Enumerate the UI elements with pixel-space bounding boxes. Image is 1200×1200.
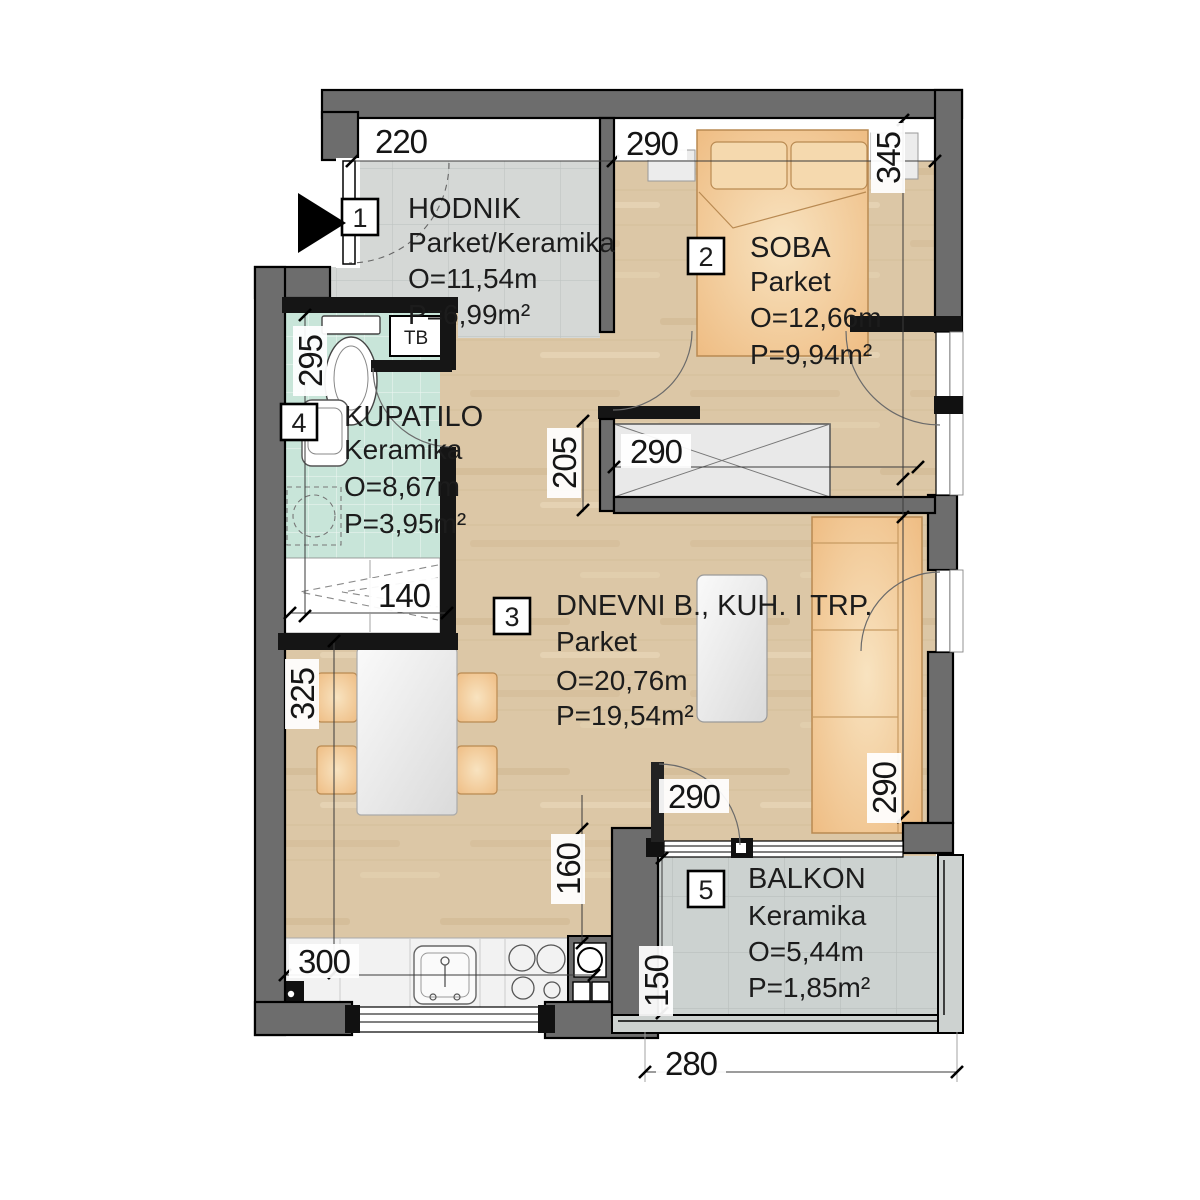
dim-345: 345 bbox=[870, 132, 907, 184]
room-floor: Parket/Keramika bbox=[408, 227, 615, 258]
room-area: P=6,99m² bbox=[408, 299, 530, 330]
dim-280: 280 bbox=[665, 1045, 718, 1082]
tag-4: 4 bbox=[291, 408, 306, 438]
pillow-icon bbox=[791, 142, 867, 189]
oven-appliance-icon bbox=[568, 936, 612, 1007]
dim-220: 220 bbox=[375, 123, 428, 160]
room-name: HODNIK bbox=[408, 193, 521, 225]
chair bbox=[317, 673, 357, 722]
dim-290-sofa: 290 bbox=[866, 761, 903, 814]
dim-300: 300 bbox=[298, 943, 351, 980]
room-name: BALKON bbox=[748, 863, 866, 895]
dim-290-soba: 290 bbox=[626, 125, 679, 162]
tag-1: 1 bbox=[352, 203, 367, 233]
room-name: KUPATILO bbox=[344, 401, 483, 433]
room-perimeter: O=20,76m bbox=[556, 665, 688, 696]
dim-140: 140 bbox=[378, 577, 431, 614]
room-floor: Parket bbox=[556, 626, 637, 657]
room-floor: Keramika bbox=[748, 900, 867, 931]
floorplan-drawing: 220 290 345 295 205 290 140 325 290 160 … bbox=[0, 0, 1200, 1200]
room-area: P=19,54m² bbox=[556, 700, 694, 731]
pillow-icon bbox=[711, 142, 787, 189]
room-name: DNEVNI B., KUH. I TRP. bbox=[556, 590, 872, 622]
chair bbox=[317, 746, 357, 794]
dim-325: 325 bbox=[284, 668, 321, 720]
room-name: SOBA bbox=[750, 232, 831, 264]
boiler-label: TB bbox=[404, 328, 428, 349]
tag-2: 2 bbox=[698, 242, 713, 272]
tag-5: 5 bbox=[698, 875, 713, 905]
floorplan-page: 220 290 345 295 205 290 140 325 290 160 … bbox=[0, 0, 1200, 1200]
room-floor: Parket bbox=[750, 266, 831, 297]
dining-table bbox=[357, 648, 457, 815]
dim-295: 295 bbox=[292, 335, 329, 387]
dim-290-closet: 290 bbox=[630, 433, 683, 470]
chair bbox=[457, 746, 497, 794]
dim-160: 160 bbox=[550, 842, 587, 895]
dim-205: 205 bbox=[546, 437, 583, 489]
chair bbox=[457, 673, 497, 722]
room-area: P=1,85m² bbox=[748, 972, 870, 1003]
dim-150: 150 bbox=[638, 954, 675, 1007]
room-perimeter: O=8,67m bbox=[344, 471, 460, 502]
kitchen-window bbox=[345, 1005, 555, 1033]
room-perimeter: O=11,54m bbox=[408, 263, 537, 294]
room-perimeter: O=5,44m bbox=[748, 936, 864, 967]
room-area: P=9,94m² bbox=[750, 339, 872, 370]
room-floor: Keramika bbox=[344, 434, 463, 465]
room-area: P=3,95m² bbox=[344, 508, 466, 539]
dim-290-balcony: 290 bbox=[668, 778, 721, 815]
room-perimeter: O=12,66m bbox=[750, 302, 882, 333]
tag-3: 3 bbox=[504, 602, 519, 632]
